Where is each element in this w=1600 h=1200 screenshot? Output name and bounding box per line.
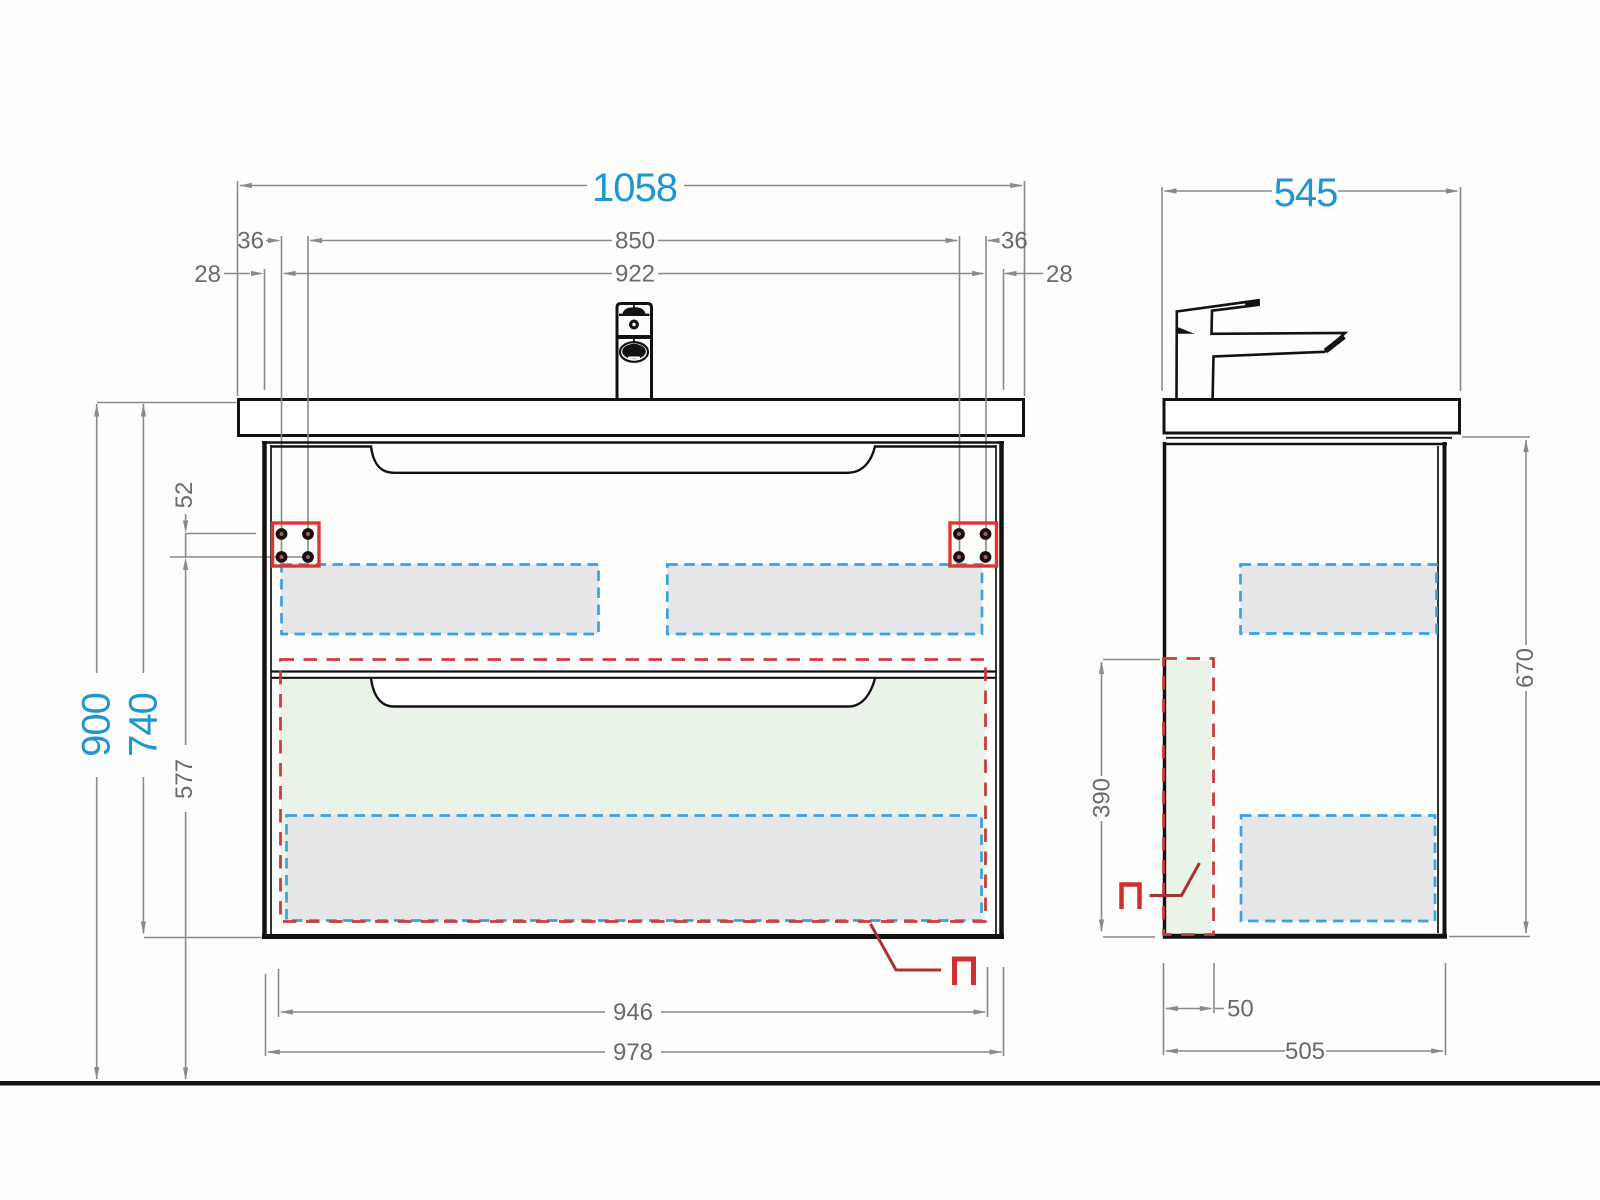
svg-text:1058: 1058 xyxy=(592,166,677,210)
svg-text:850: 850 xyxy=(615,228,655,255)
svg-text:28: 28 xyxy=(194,261,221,288)
svg-text:36: 36 xyxy=(1001,228,1028,255)
svg-text:50: 50 xyxy=(1227,996,1254,1023)
svg-text:740: 740 xyxy=(122,693,166,757)
svg-text:390: 390 xyxy=(1089,778,1116,818)
svg-text:900: 900 xyxy=(75,693,119,757)
svg-text:978: 978 xyxy=(613,1039,653,1066)
svg-text:52: 52 xyxy=(171,482,198,509)
svg-text:577: 577 xyxy=(171,759,198,799)
svg-text:36: 36 xyxy=(237,228,264,255)
svg-text:545: 545 xyxy=(1274,171,1338,215)
svg-text:946: 946 xyxy=(613,999,653,1026)
svg-text:28: 28 xyxy=(1046,261,1073,288)
svg-text:922: 922 xyxy=(615,261,655,288)
svg-text:670: 670 xyxy=(1512,648,1539,688)
svg-text:505: 505 xyxy=(1285,1038,1325,1065)
